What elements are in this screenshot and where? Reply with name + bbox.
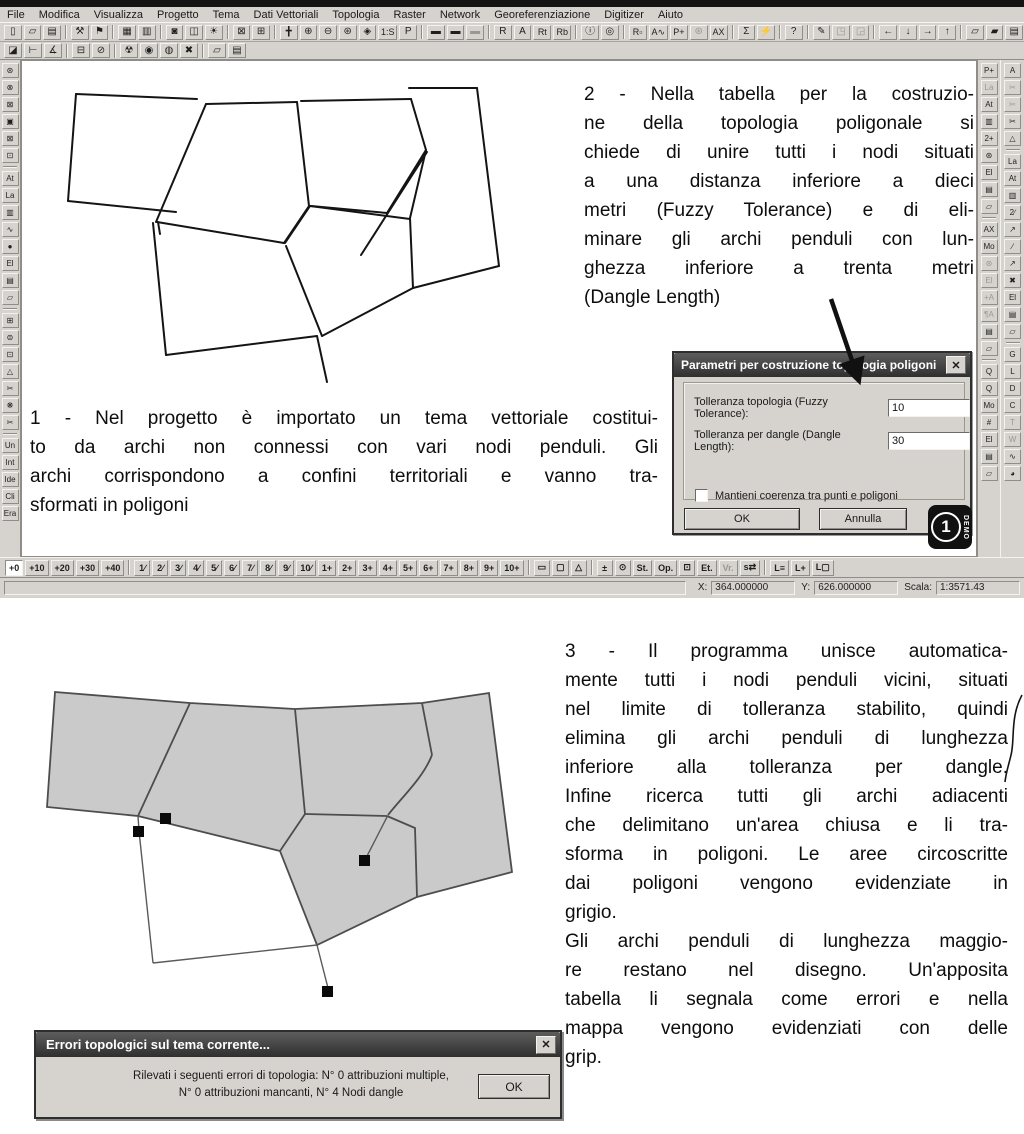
text-line: archi corrispondono a confini territoria… xyxy=(30,462,658,491)
save-view-icon[interactable]: ▤ xyxy=(1005,25,1023,40)
theme-copy-icon[interactable]: ▬ xyxy=(447,25,465,40)
open-project-icon[interactable]: ▱ xyxy=(24,25,42,40)
snap-3-button[interactable]: 3+ xyxy=(358,560,376,576)
merge-icon[interactable]: ⊞ xyxy=(2,313,19,328)
info-icon[interactable]: ⓘ xyxy=(581,25,599,40)
page-layout-icon[interactable]: ▥ xyxy=(138,25,156,40)
scale-5-button[interactable]: 5∕ xyxy=(206,560,222,576)
new-project-icon[interactable]: ▯ xyxy=(4,25,22,40)
point-save-icon[interactable]: ▤ xyxy=(981,182,998,197)
status-x-value: 364.000000 xyxy=(711,581,795,595)
menu-visualizza[interactable]: Visualizza xyxy=(87,9,150,21)
toolbar-topology: ◪⊢∡⊟⊘☢◉◍✖▱▤ xyxy=(0,42,1024,60)
labels-icon[interactable]: La xyxy=(2,188,19,203)
text-line: to da archi non connessi con vari nodi p… xyxy=(30,433,658,462)
toolbar-separator xyxy=(807,25,809,39)
zoom-previous-icon[interactable]: P xyxy=(399,25,417,40)
toolbar-separator xyxy=(764,560,766,575)
text-line: a una distanza inferiore a dieci xyxy=(584,167,974,196)
toolbar-separator xyxy=(488,25,490,39)
zoom-selected-icon[interactable]: ⊛ xyxy=(2,63,19,78)
coherence-checkbox[interactable] xyxy=(695,489,708,502)
arc-delete-icon[interactable]: El xyxy=(1004,290,1021,305)
right-toolbar-outer: A✂✂✂△LaAt▥2∕↗∕↗✖El▤▱GLDCTW∿◕ xyxy=(1000,60,1024,557)
arc-edit-icon[interactable]: A xyxy=(1004,63,1021,78)
new-view-icon[interactable]: ⊞ xyxy=(252,25,270,40)
pan-icon[interactable]: ╋ xyxy=(280,25,298,40)
dual-view-icon[interactable]: ◫ xyxy=(185,25,203,40)
modify-query-icon[interactable]: Mo xyxy=(981,398,998,413)
cut-arc-icon: ✂ xyxy=(1004,97,1021,112)
error-ok-button[interactable]: OK xyxy=(478,1074,550,1099)
open-theme-icon[interactable]: ▱ xyxy=(2,290,19,305)
swap-button[interactable]: s⇄ xyxy=(740,560,761,576)
eliminate-icon[interactable]: El xyxy=(2,256,19,271)
toolbar-separator xyxy=(128,560,130,575)
georeference-icon[interactable]: G xyxy=(1004,347,1021,362)
attributes-icon[interactable]: At xyxy=(2,171,19,186)
angle-tool-icon[interactable]: ∡ xyxy=(44,43,62,58)
text-line: 1 - Nel progetto è importato un tema vet… xyxy=(30,404,658,433)
spline-icon[interactable]: ∿ xyxy=(2,222,19,237)
theme-paste-icon: ▬ xyxy=(466,25,484,40)
annotation-step3: 3 - Il programma unisce automatica-mente… xyxy=(565,637,1008,1072)
explode-icon[interactable]: ❋ xyxy=(2,398,19,413)
dialog-body: Tolleranza topologia (Fuzzy Tolerance): … xyxy=(674,377,970,533)
menu-tema[interactable]: Tema xyxy=(206,9,247,21)
error-dialog-title: Errori topologici sul tema corrente... xyxy=(46,1037,536,1052)
scale-10-button[interactable]: 10∕ xyxy=(296,560,316,576)
raster-table-icon[interactable]: Rt xyxy=(533,25,551,40)
close-icon[interactable]: ✕ xyxy=(536,1036,556,1054)
text-line: mappa vengono evidenziati con delle xyxy=(565,1014,1008,1043)
offset-icon[interactable]: ± xyxy=(597,560,613,576)
left-toolbar: ⊛⊗⊠▣⊠⊡AtLa▥∿●El▤▱⊞⊜⊡△✂❋✂UnIntIdeCliEra xyxy=(0,60,21,557)
save-theme-icon[interactable]: ▤ xyxy=(2,273,19,288)
text-line: grigio. xyxy=(565,898,1008,927)
grid-icon[interactable]: # xyxy=(981,415,998,430)
arc-attributes-icon[interactable]: At xyxy=(1004,171,1021,186)
scale-9-button[interactable]: 9∕ xyxy=(278,560,294,576)
layer-add-button[interactable]: L+ xyxy=(791,560,810,576)
text-line: nel limite di tolleranza stabilito, quin… xyxy=(565,695,1008,724)
toolbar-separator xyxy=(575,25,577,39)
annotation-step1: 1 - Nel progetto è importato un tema vet… xyxy=(30,404,658,520)
split-arc-icon[interactable]: ✂ xyxy=(2,381,19,396)
toolbar-separator xyxy=(732,25,734,39)
close-icon[interactable]: ✕ xyxy=(946,356,966,374)
rect-icon[interactable]: ▢ xyxy=(552,560,569,576)
dangle-length-input[interactable] xyxy=(888,432,970,450)
annotation-step3-para2: Gli archi penduli di lunghezza maggio-re… xyxy=(565,927,1008,1072)
trim-icon[interactable]: ✂ xyxy=(2,415,19,430)
text-mode-icon: T xyxy=(1004,415,1021,430)
scale-3-button[interactable]: 3∕ xyxy=(170,560,186,576)
point-open-icon[interactable]: ▱ xyxy=(981,199,998,214)
query-open-icon[interactable]: ▱ xyxy=(981,466,998,481)
snap-1-button[interactable]: 1+ xyxy=(318,560,336,576)
crop-icon[interactable]: ⊠ xyxy=(2,131,19,146)
identity-icon[interactable]: Ide xyxy=(2,472,19,487)
polygon-area xyxy=(47,692,512,945)
bounds-icon[interactable]: ⊡ xyxy=(2,347,19,362)
balance-icon[interactable]: ⊜ xyxy=(2,330,19,345)
layers-icon[interactable]: L xyxy=(1004,364,1021,379)
point-label-icon: La xyxy=(981,80,998,95)
menu-modifica[interactable]: Modifica xyxy=(32,9,87,21)
text-snap-icon: ⊛ xyxy=(981,256,998,271)
delete-selection-icon[interactable]: ⊠ xyxy=(2,97,19,112)
text-line: re restano nel disegno. Un'apposita xyxy=(565,956,1008,985)
menu-bar: FileModificaVisualizzaProgettoTemaDati V… xyxy=(0,7,1024,22)
arc-view-icon[interactable]: A xyxy=(514,25,532,40)
toolbar-separator xyxy=(66,44,68,58)
polygon-tool-icon[interactable]: △ xyxy=(2,364,19,379)
toolbar-separator xyxy=(779,25,781,39)
zoom-scale-icon[interactable]: 1:S xyxy=(378,25,397,40)
toolbar-separator xyxy=(202,44,204,58)
snap-8-button[interactable]: 8+ xyxy=(460,560,478,576)
dangle-grip xyxy=(322,986,333,997)
map-after-drawing xyxy=(30,675,570,1035)
tolerance-40-button[interactable]: +40 xyxy=(101,560,124,576)
dangle-length-label: Tolleranza per dangle (Dangle Length): xyxy=(694,429,880,453)
layer-box-button[interactable]: L▢ xyxy=(812,560,834,576)
measure-bar-icon[interactable]: ▭ xyxy=(534,560,551,576)
dangle-grip xyxy=(359,855,370,866)
copy-selection-icon[interactable]: ▣ xyxy=(2,114,19,129)
lock-icon[interactable]: ⊙ xyxy=(615,560,631,576)
toolbar-separator xyxy=(960,25,962,39)
print-frame-icon: ◲ xyxy=(852,25,870,40)
run-icon[interactable]: ⚑ xyxy=(91,25,109,40)
style-button[interactable]: St. xyxy=(633,560,653,576)
snap-4-button[interactable]: 4+ xyxy=(379,560,397,576)
modify-text-icon[interactable]: Mo xyxy=(981,239,998,254)
point-snap-icon[interactable]: ⊛ xyxy=(981,148,998,163)
zoom-extents-icon[interactable]: ⊛ xyxy=(339,25,357,40)
scale-4-button[interactable]: 4∕ xyxy=(188,560,204,576)
annotation-step2: 2 - Nella tabella per la costruzio-ne de… xyxy=(584,80,974,312)
menu-digitizer[interactable]: Digitizer xyxy=(597,9,651,21)
query-delete-icon[interactable]: El xyxy=(981,432,998,447)
frame-icon: ◳ xyxy=(832,25,850,40)
save-project-icon[interactable]: ▤ xyxy=(43,25,61,40)
add-point-icon[interactable]: P+ xyxy=(981,63,998,78)
text-line: Infine ricerca tutti gli archi adiacenti xyxy=(565,782,1008,811)
toolbar-main: ▯▱▤⚒⚑▦▥◙◫☀⊠⊞╋⊕⊖⊛◈1:SP▬▬▬RARtRbⓘ◎R▫A∿P+⊛A… xyxy=(0,22,1024,42)
text-line: tabella li segnala come errori e nella xyxy=(565,985,1008,1014)
menu-network[interactable]: Network xyxy=(433,9,487,21)
toolbar-separator xyxy=(112,25,114,39)
erase-icon[interactable]: Era xyxy=(2,506,19,521)
text-line: 2 - Nella tabella per la costruzio- xyxy=(584,80,974,109)
intersect-icon[interactable]: Int xyxy=(2,455,19,470)
frame-toggle-icon[interactable]: ⊡ xyxy=(679,560,695,576)
query-icon[interactable]: ⚡ xyxy=(757,25,775,40)
menu-file[interactable]: File xyxy=(0,9,32,21)
map-before-drawing xyxy=(45,74,585,424)
remove-node-icon[interactable]: ⊘ xyxy=(92,43,110,58)
add-point-icon[interactable]: P+ xyxy=(670,25,688,40)
raster-bands-icon[interactable]: Rb xyxy=(553,25,571,40)
select-arc-icon[interactable]: A∿ xyxy=(649,25,668,40)
snap-5-button[interactable]: 5+ xyxy=(399,560,417,576)
paragraph-text-icon: ¶A xyxy=(981,307,998,322)
arc-save-icon[interactable]: ▤ xyxy=(1004,307,1021,322)
toolbar-separator xyxy=(65,25,67,39)
text-line: inferiore alla tolleranza per dangle. xyxy=(565,753,1008,782)
attribute-text-icon[interactable]: AX xyxy=(710,25,728,40)
fuzzy-tolerance-label: Tolleranza topologia (Fuzzy Tolerance): xyxy=(694,396,880,420)
text-open-icon[interactable]: ▱ xyxy=(981,341,998,356)
toolbar-separator xyxy=(274,25,276,39)
close-view-icon[interactable]: ⊠ xyxy=(233,25,251,40)
snap-10-button[interactable]: 10+ xyxy=(500,560,523,576)
toolbar-separator xyxy=(3,166,17,168)
tolerance-10-button[interactable]: +10 xyxy=(25,560,48,576)
demo-badge: 1 DEMO xyxy=(928,505,972,549)
statistics-icon[interactable]: Σ xyxy=(738,25,756,40)
text-line: ne della topologia poligonale si xyxy=(584,109,974,138)
insert-text-icon: +A xyxy=(981,290,998,305)
ok-button[interactable]: OK xyxy=(684,508,800,530)
redraw-icon[interactable]: ☀ xyxy=(205,25,223,40)
text-line: dai poligoni vengono evidenziate in xyxy=(565,869,1008,898)
pan-north-icon[interactable]: ↑ xyxy=(938,25,956,40)
status-y-label: Y: xyxy=(801,582,810,593)
union-icon[interactable]: Un xyxy=(2,438,19,453)
status-bar: X: 364.000000 Y: 626.000000 Scala: 1:357… xyxy=(0,577,1024,597)
save-topology-icon[interactable]: ▤ xyxy=(228,43,246,58)
toolbar-separator xyxy=(160,25,162,39)
coordinates-icon[interactable]: C xyxy=(1004,398,1021,413)
window-titlebar xyxy=(0,0,1024,7)
clear-topology-icon[interactable]: ✖ xyxy=(180,43,198,58)
menu-dati-vettoriali[interactable]: Dati Vettoriali xyxy=(247,9,326,21)
close-polygon-icon[interactable]: △ xyxy=(1004,131,1021,146)
point-attributes-icon[interactable]: At xyxy=(981,97,998,112)
status-scale-value: 1:3571.43 xyxy=(936,581,1020,595)
raster-tool-icon[interactable]: R xyxy=(494,25,512,40)
scale-7-button[interactable]: 7∕ xyxy=(242,560,258,576)
error-message-line1: Rilevati i seguenti errori di topologia:… xyxy=(91,1068,491,1085)
text-delete-icon: El xyxy=(981,273,998,288)
zoom-out-icon[interactable]: ⊖ xyxy=(319,25,337,40)
menu-progetto[interactable]: Progetto xyxy=(150,9,206,21)
arc-open-icon[interactable]: ▱ xyxy=(1004,324,1021,339)
polygon-icon[interactable]: △ xyxy=(571,560,587,576)
text-line: (Dangle Length) xyxy=(584,283,974,312)
query-save-icon[interactable]: ▤ xyxy=(981,449,998,464)
toolbar-separator xyxy=(114,44,116,58)
error-message: Rilevati i seguenti errori di topologia:… xyxy=(91,1068,491,1102)
text-line: sforma in poligoni. Le aree circoscritte xyxy=(565,840,1008,869)
toolbar-separator xyxy=(1006,149,1020,151)
direction-icon[interactable]: ↗ xyxy=(1004,222,1021,237)
options-button[interactable]: Op. xyxy=(654,560,677,576)
fuzzy-tolerance-input[interactable] xyxy=(888,399,970,417)
find-icon[interactable]: ◎ xyxy=(601,25,619,40)
profile-icon[interactable]: ∿ xyxy=(1004,449,1021,464)
toolbar-separator xyxy=(421,25,423,39)
layer-list-button[interactable]: L≡ xyxy=(770,560,789,576)
coherence-checkbox-label: Mantieni coerenza tra punti e poligoni xyxy=(715,490,898,502)
double-arc-icon[interactable]: 2∕ xyxy=(1004,205,1021,220)
demo-badge-number: 1 xyxy=(931,512,961,542)
legend-icon[interactable]: ◙ xyxy=(166,25,184,40)
text-line: metri (Fuzzy Tolerance) e di eli- xyxy=(584,196,974,225)
help-icon[interactable]: ? xyxy=(785,25,803,40)
right-toolbar-inner: P+LaAt▥2+⊛El▤▱AXMo⊛El+A¶A▤▱QQMo#El▤▱ xyxy=(977,60,1000,557)
error-dialog-titlebar: Errori topologici sul tema corrente... ✕ xyxy=(36,1032,560,1057)
text-line: sformati in poligoni xyxy=(30,491,658,520)
text-line: chiede di unire tutti i nodi situati xyxy=(584,138,974,167)
text-line: mente tutti i nodi penduli vicini, situa… xyxy=(565,666,1008,695)
scale-1-button[interactable]: 1∕ xyxy=(134,560,150,576)
bottom-toolbar: +0+10+20+30+401∕2∕3∕4∕5∕6∕7∕8∕9∕10∕1+2+3… xyxy=(0,557,1024,577)
snap-7-button[interactable]: 7+ xyxy=(440,560,458,576)
scale-8-button[interactable]: 8∕ xyxy=(260,560,276,576)
vertex-move-icon[interactable]: ↗ xyxy=(1004,256,1021,271)
toolbar-separator xyxy=(873,25,875,39)
build-topology-icon[interactable]: ☢ xyxy=(120,43,138,58)
topology-errors-dialog: Errori topologici sul tema corrente... ✕… xyxy=(34,1030,562,1119)
menu-aiuto[interactable]: Aiuto xyxy=(651,9,690,21)
fill-style-icon[interactable]: ● xyxy=(2,239,19,254)
extent-box-icon[interactable]: ⊡ xyxy=(2,148,19,163)
node-topology-icon[interactable]: ◉ xyxy=(140,43,158,58)
copy-view-icon[interactable]: ▰ xyxy=(986,25,1004,40)
toolbar-separator xyxy=(3,308,17,310)
tolerance-30-button[interactable]: +30 xyxy=(76,560,99,576)
status-scale-label: Scala: xyxy=(904,582,932,593)
dangle-grip xyxy=(160,813,171,824)
text-line: elimina gli archi penduli di lunghezza xyxy=(565,724,1008,753)
zoom-window-icon[interactable]: ◈ xyxy=(359,25,377,40)
join-arcs-icon[interactable]: ⊟ xyxy=(72,43,90,58)
query-rect-icon[interactable]: Q xyxy=(981,364,998,379)
toolbar-separator xyxy=(227,25,229,39)
error-message-line2: N° 0 attribuzioni mancanti, N° 4 Nodi da… xyxy=(91,1085,491,1102)
snap-tolerance-icon: ⊛ xyxy=(690,25,708,40)
page: FileModificaVisualizzaProgettoTemaDati V… xyxy=(0,0,1024,1134)
theme-list-icon[interactable]: ▬ xyxy=(427,25,445,40)
point-measure-icon[interactable]: ▥ xyxy=(981,114,998,129)
toolbar-separator xyxy=(3,433,17,435)
print-icon[interactable]: ▦ xyxy=(118,25,136,40)
annotation-step3-para1: 3 - Il programma unisce automatica-mente… xyxy=(565,637,1008,927)
double-point-icon[interactable]: 2+ xyxy=(981,131,998,146)
arc-label-icon[interactable]: La xyxy=(1004,154,1021,169)
tolerance-0-button[interactable]: +0 xyxy=(5,560,23,576)
export-view-icon[interactable]: ▱ xyxy=(966,25,984,40)
pan-south-icon[interactable]: ↓ xyxy=(899,25,917,40)
menu-topologia[interactable]: Topologia xyxy=(325,9,386,21)
text-tool-icon[interactable]: AX xyxy=(981,222,998,237)
snap-6-button[interactable]: 6+ xyxy=(419,560,437,576)
cut-node-icon: ✂ xyxy=(1004,80,1021,95)
square-tool-icon[interactable]: ⊢ xyxy=(24,43,42,58)
world-icon[interactable]: ◕ xyxy=(1004,466,1021,481)
point-delete-icon[interactable]: El xyxy=(981,165,998,180)
scissors-icon[interactable]: ✂ xyxy=(1004,114,1021,129)
toolbar-separator xyxy=(591,560,593,575)
annotation-arrow xyxy=(818,295,878,395)
snap-9-button[interactable]: 9+ xyxy=(480,560,498,576)
text-line: Gli archi penduli di lunghezza maggio- xyxy=(565,927,1008,956)
pan-east-icon[interactable]: → xyxy=(919,25,937,40)
text-line: minare gli archi penduli con lun- xyxy=(584,225,974,254)
dialog-title: Parametri per costruzione topologia poli… xyxy=(681,358,946,372)
gis-app-window: FileModificaVisualizzaProgettoTemaDati V… xyxy=(0,0,1024,598)
query-zoom-icon[interactable]: Q xyxy=(981,381,998,396)
menu-georeferenziazione[interactable]: Georeferenziazione xyxy=(487,9,597,21)
deselect-icon[interactable]: ⊗ xyxy=(2,80,19,95)
pan-west-icon[interactable]: ← xyxy=(879,25,897,40)
menu-raster[interactable]: Raster xyxy=(386,9,432,21)
toolbar-separator xyxy=(1006,342,1020,344)
cancel-button[interactable]: Annulla xyxy=(819,508,907,530)
toolbar-separator xyxy=(623,25,625,39)
status-spacer xyxy=(4,581,686,595)
demo-badge-text: DEMO xyxy=(962,515,969,540)
status-x-label: X: xyxy=(698,582,707,593)
text-line: grip. xyxy=(565,1043,1008,1072)
text-line: 3 - Il programma unisce automatica- xyxy=(565,637,1008,666)
snap-2-button[interactable]: 2+ xyxy=(338,560,356,576)
check-dangle-icon[interactable]: ◍ xyxy=(160,43,178,58)
measure-icon[interactable]: ▥ xyxy=(2,205,19,220)
toolbar-separator xyxy=(982,217,996,219)
status-y-value: 626.000000 xyxy=(814,581,898,595)
segment-icon[interactable]: ∕ xyxy=(1004,239,1021,254)
labels-toggle-button[interactable]: Et. xyxy=(697,560,717,576)
toolbar-separator xyxy=(528,560,530,575)
tolerance-20-button[interactable]: +20 xyxy=(51,560,74,576)
text-line: che delimitano un'area chiusa e li tra- xyxy=(565,811,1008,840)
digitize-icon[interactable]: ✎ xyxy=(813,25,831,40)
select-raster-icon[interactable]: R▫ xyxy=(629,25,647,40)
text-save-icon[interactable]: ▤ xyxy=(981,324,998,339)
scale-2-button[interactable]: 2∕ xyxy=(152,560,168,576)
digitizer-icon[interactable]: D xyxy=(1004,381,1021,396)
tools-icon[interactable]: ⚒ xyxy=(71,25,89,40)
scale-6-button[interactable]: 6∕ xyxy=(224,560,240,576)
curve-mark xyxy=(1002,692,1024,787)
text-line: ghezza inferiore a trenta metri xyxy=(584,254,974,283)
dangle-grip xyxy=(133,826,144,837)
arc-measure-icon[interactable]: ▥ xyxy=(1004,188,1021,203)
toolbar-separator xyxy=(982,359,996,361)
clip-icon[interactable]: Cli xyxy=(2,489,19,504)
open-topology-icon[interactable]: ▱ xyxy=(208,43,226,58)
wms-icon: W xyxy=(1004,432,1021,447)
vertices-toggle-button: Vr. xyxy=(719,560,738,576)
delete-node-icon[interactable]: ✖ xyxy=(1004,273,1021,288)
select-polygon-icon[interactable]: ◪ xyxy=(4,43,22,58)
zoom-in-icon[interactable]: ⊕ xyxy=(300,25,318,40)
